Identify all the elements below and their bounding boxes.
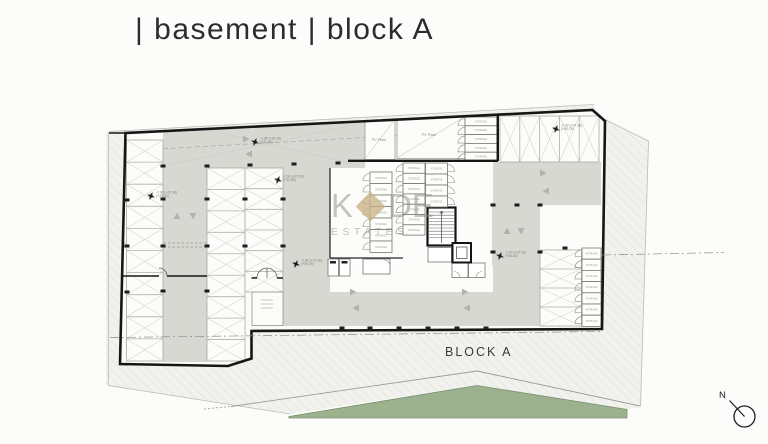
storage-label-group: STORAGE: [375, 223, 387, 226]
pv-plant-label-2: PV Plant: [422, 133, 436, 137]
storage-label-group: STORAGE: [475, 156, 487, 159]
storage-label: STORAGE: [408, 208, 420, 211]
elevator-shaft: [453, 243, 472, 263]
storage-label-group: STORAGE: [586, 309, 598, 312]
storage-label-group: STORAGE: [586, 320, 598, 323]
storage-label: STORAGE: [475, 129, 487, 132]
small-room-5: [469, 263, 486, 278]
column-marker: [248, 164, 253, 167]
column-marker: [368, 327, 373, 330]
aisle-bottom: [283, 292, 540, 326]
elevator: [453, 243, 472, 263]
storage-label: STORAGE: [475, 120, 487, 123]
storage-label-group: STORAGE: [408, 167, 420, 170]
storage-label-group: STORAGE: [408, 219, 420, 222]
storage-label-group: STORAGE: [408, 177, 420, 180]
storage-label: STORAGE: [586, 320, 598, 323]
column-marker: [281, 198, 286, 201]
storage-label: STORAGE: [408, 188, 420, 191]
storage-label: STORAGE: [408, 167, 420, 170]
storage-label: STORAGE: [408, 177, 420, 180]
storage-label: STORAGE: [375, 234, 387, 237]
column-marker: [515, 204, 520, 207]
storage-label: STORAGE: [408, 219, 420, 222]
storage-label: STORAGE: [431, 168, 443, 171]
level-value-line2: (+40.50): [505, 254, 518, 258]
storage-label: STORAGE: [475, 147, 487, 150]
column-marker: [243, 245, 248, 248]
basement-floor-plan: STORAGESTORAGESTORAGESTORAGESTORAGESTORA…: [0, 0, 768, 444]
storage-label-group: STORAGE: [475, 138, 487, 141]
storage-label-group: STORAGE: [475, 147, 487, 150]
storage-label-group: STORAGE: [475, 129, 487, 132]
column-marker: [205, 290, 210, 293]
screenshot-root: | basement | block A: [0, 0, 768, 444]
column-marker: [340, 327, 345, 330]
column-marker: [161, 165, 166, 168]
storage-label-group: STORAGE: [431, 201, 443, 204]
storage-label: STORAGE: [586, 309, 598, 312]
level-value-line2: (+41.00): [283, 178, 296, 182]
column-marker: [484, 327, 489, 330]
storage-label: STORAGE: [375, 246, 387, 249]
aisle-right-vert: [493, 205, 540, 292]
north-label: N: [719, 390, 726, 401]
column-marker: [125, 245, 130, 248]
column-marker: [538, 204, 543, 207]
column-marker: [336, 162, 341, 165]
north-compass: N: [719, 390, 755, 427]
storage-label: STORAGE: [586, 253, 598, 256]
site-edge-dashed: [204, 407, 231, 410]
column-marker: [281, 245, 286, 248]
storage-label-group: STORAGE: [431, 179, 443, 182]
column-marker: [161, 290, 166, 293]
storage-label: STORAGE: [375, 188, 387, 191]
column-marker: [292, 163, 297, 166]
column-marker: [397, 327, 402, 330]
storage-label: STORAGE: [431, 179, 443, 182]
column-marker: [161, 245, 166, 248]
storage-label: STORAGE: [586, 275, 598, 278]
column-marker: [491, 204, 496, 207]
storage-label-group: STORAGE: [408, 208, 420, 211]
storage-label: STORAGE: [375, 211, 387, 214]
storage-label-group: STORAGE: [586, 264, 598, 267]
level-value-line2: (+43.75): [561, 127, 574, 131]
storage-label-group: STORAGE: [375, 177, 387, 180]
pv-plant-label-1: PV Plant: [372, 138, 386, 142]
column-marker: [491, 251, 496, 254]
svg-text:PV Plant: PV Plant: [372, 138, 386, 142]
fire-room: [252, 292, 283, 326]
storage-label-group: STORAGE: [375, 200, 387, 203]
storage-label: STORAGE: [408, 198, 420, 201]
level-value-line2: (+41.00): [260, 140, 273, 144]
aisle-left: [163, 168, 207, 362]
storage-label-group: STORAGE: [375, 246, 387, 249]
storage-label: STORAGE: [408, 229, 420, 232]
column-marker: [243, 198, 248, 201]
storage-label-group: STORAGE: [586, 297, 598, 300]
svg-text:PV Plant: PV Plant: [422, 133, 436, 137]
column-marker: [205, 165, 210, 168]
storage-label: STORAGE: [586, 297, 598, 300]
column-marker: [563, 247, 568, 250]
aisle-right-top: [493, 162, 601, 205]
block-a-label: BLOCK A: [445, 345, 513, 359]
storage-label-group: STORAGE: [431, 190, 443, 193]
storage-label-group: STORAGE: [375, 211, 387, 214]
storage-label: STORAGE: [475, 156, 487, 159]
level-value-line2: (+39.75): [301, 262, 314, 266]
aisle-mid: [283, 168, 330, 292]
room-mark-1: [330, 261, 336, 264]
small-room-3: [363, 259, 390, 274]
storage-label: STORAGE: [431, 201, 443, 204]
column-marker: [538, 251, 543, 254]
storage-label-group: STORAGE: [475, 120, 487, 123]
column-marker: [125, 199, 130, 202]
storage-label-group: STORAGE: [375, 234, 387, 237]
storage-label: STORAGE: [586, 264, 598, 267]
storage-label: STORAGE: [375, 177, 387, 180]
storage-label-group: STORAGE: [408, 198, 420, 201]
small-room-4: [452, 263, 468, 278]
storage-label-group: STORAGE: [586, 286, 598, 289]
column-marker: [205, 245, 210, 248]
storage-label-group: STORAGE: [586, 253, 598, 256]
compass-needle: [730, 401, 745, 417]
storage-label: STORAGE: [375, 200, 387, 203]
staircase: [428, 208, 456, 246]
storage-label: STORAGE: [375, 223, 387, 226]
storage-label-group: STORAGE: [408, 229, 420, 232]
storage-label: STORAGE: [586, 286, 598, 289]
lift-lobby: [428, 248, 452, 263]
storage-label-group: STORAGE: [431, 168, 443, 171]
storage-label-group: STORAGE: [586, 275, 598, 278]
storage-label-group: STORAGE: [408, 188, 420, 191]
room-mark-2: [342, 261, 348, 264]
column-marker: [426, 327, 431, 330]
column-marker: [455, 327, 460, 330]
level-value-line2: (+43.00): [156, 194, 169, 198]
column-marker: [205, 198, 210, 201]
storage-label-group: STORAGE: [375, 188, 387, 191]
storage-label: STORAGE: [431, 190, 443, 193]
storage-label: STORAGE: [475, 138, 487, 141]
column-marker: [125, 291, 130, 294]
